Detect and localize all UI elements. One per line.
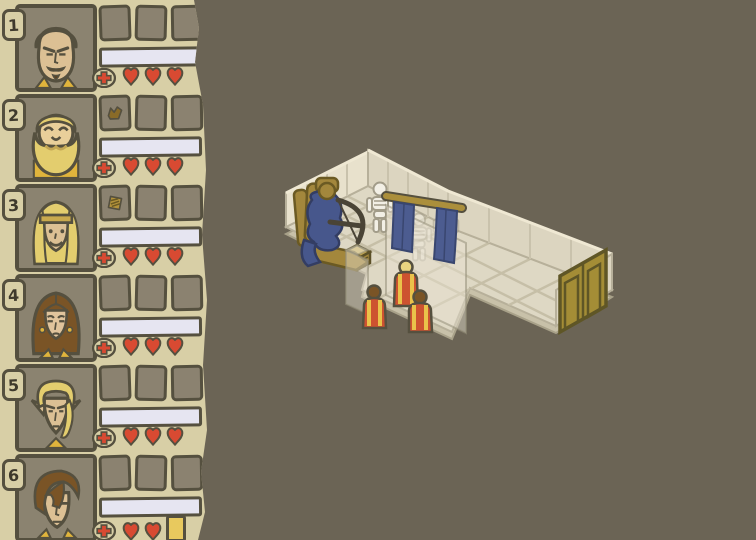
- character-number-badge: 6: [2, 459, 26, 491]
- heart-icon: [120, 520, 142, 540]
- inventory-slot-empty[interactable]: [98, 274, 131, 311]
- health-cross-icon: [92, 521, 116, 540]
- hearts: [120, 155, 186, 181]
- character-number-badge: 4: [2, 279, 26, 311]
- inventory-slot-empty[interactable]: [171, 365, 204, 402]
- heart-icon: [120, 335, 142, 357]
- hearts: [120, 425, 186, 451]
- portrait-blond-elf[interactable]: [15, 364, 97, 452]
- health-row: [92, 515, 186, 540]
- character-panel-3[interactable]: 3: [2, 183, 209, 271]
- inventory-slot-empty[interactable]: [171, 95, 204, 132]
- heart-icon: [142, 425, 164, 447]
- health-row: [92, 65, 186, 91]
- inventory-slot-empty[interactable]: [171, 455, 204, 492]
- heart-icon: [164, 245, 186, 267]
- character-panel-2[interactable]: 2: [2, 93, 209, 181]
- inventory-slots: [99, 95, 203, 131]
- inventory-slot-empty[interactable]: [171, 185, 204, 222]
- character-panel-6[interactable]: 6: [2, 453, 209, 540]
- hearts: [120, 335, 186, 361]
- inventory-slots: [99, 365, 203, 401]
- figure-helmet: [319, 183, 335, 199]
- health-cross-icon: [92, 158, 116, 178]
- heart-icon: [120, 65, 142, 87]
- portrait-brown-haired-woman[interactable]: [15, 274, 97, 362]
- heart-icon: [142, 65, 164, 87]
- heart-icon: [120, 245, 142, 267]
- heart-icon: [164, 65, 186, 87]
- inventory-slot-empty[interactable]: [135, 455, 168, 492]
- character-number: 6: [8, 465, 20, 485]
- inventory-slot-brown-item[interactable]: [98, 94, 131, 131]
- inventory-slot-empty[interactable]: [135, 275, 168, 312]
- character-number: 4: [8, 285, 20, 305]
- heart-icon: [142, 155, 164, 177]
- portrait-bearded-dwarf[interactable]: [15, 94, 97, 182]
- inventory-slot-gold-striped-item[interactable]: [98, 184, 131, 221]
- heart-icon: [164, 335, 186, 357]
- hearts: [120, 515, 186, 540]
- party-sidebar: 1 2 3: [0, 0, 212, 540]
- hearts: [120, 65, 186, 91]
- hearts: [120, 245, 186, 271]
- portrait-fringe-man[interactable]: [15, 454, 97, 540]
- character-number-badge: 2: [2, 99, 26, 131]
- character-number: 5: [8, 375, 20, 395]
- heart-icon: [142, 245, 164, 267]
- health-row: [92, 155, 186, 181]
- inventory-slots: [99, 455, 203, 491]
- health-cross-icon: [92, 338, 116, 358]
- health-row: [92, 245, 186, 271]
- inventory-slot-empty[interactable]: [98, 364, 131, 401]
- heart-icon: [120, 155, 142, 177]
- health-cross-icon: [92, 68, 116, 88]
- heart-icon: [142, 520, 164, 540]
- character-number-badge: 1: [2, 9, 26, 41]
- heart-icon: [120, 425, 142, 447]
- inventory-slot-empty[interactable]: [171, 275, 204, 312]
- inventory-slots: [99, 185, 203, 221]
- portrait-stern-man[interactable]: [15, 4, 97, 92]
- health-cross-icon: [92, 428, 116, 448]
- inventory-slot-empty[interactable]: [135, 365, 168, 402]
- health-row: [92, 335, 186, 361]
- inventory-slots: [99, 275, 203, 311]
- inventory-slot-empty[interactable]: [98, 454, 131, 491]
- character-number-badge: 3: [2, 189, 26, 221]
- portrait-blond-headband[interactable]: [15, 184, 97, 272]
- character-panel-1[interactable]: 1: [2, 3, 209, 91]
- inventory-slot-empty[interactable]: [135, 95, 168, 132]
- health-cross-icon: [92, 248, 116, 268]
- party-list: 1 2 3: [0, 0, 212, 540]
- character-panel-4[interactable]: 4: [2, 273, 209, 361]
- character-number: 3: [8, 195, 20, 215]
- inventory-slot-empty[interactable]: [135, 5, 168, 42]
- character-number-badge: 5: [2, 369, 26, 401]
- game-screen: 1 2 3: [0, 0, 756, 540]
- heart-icon: [164, 425, 186, 447]
- character-panel-5[interactable]: 5: [2, 363, 209, 451]
- character-number: 1: [8, 15, 20, 35]
- inventory-slot-empty[interactable]: [135, 185, 168, 222]
- inventory-slots: [99, 5, 203, 41]
- gold-token-icon: [166, 515, 186, 540]
- heart-icon: [164, 155, 186, 177]
- character-number: 2: [8, 105, 20, 125]
- health-row: [92, 425, 186, 451]
- inventory-slot-empty[interactable]: [98, 4, 131, 41]
- heart-icon: [142, 335, 164, 357]
